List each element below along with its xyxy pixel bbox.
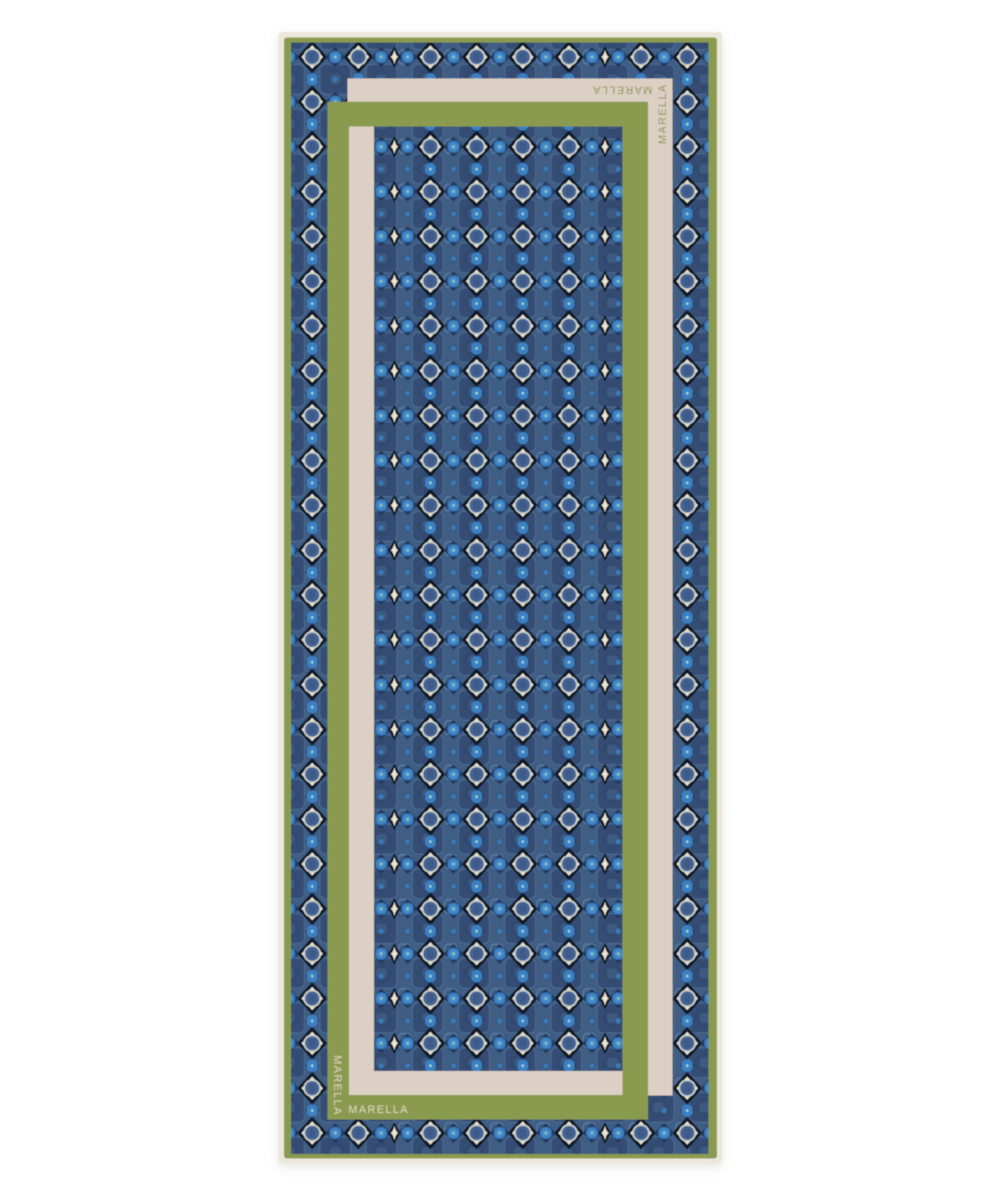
svg-text:MARELLA: MARELLA [331, 1055, 343, 1116]
svg-text:MARELLA: MARELLA [592, 84, 653, 96]
svg-text:MARELLA: MARELLA [348, 1104, 409, 1116]
svg-text:MARELLA: MARELLA [657, 83, 669, 144]
